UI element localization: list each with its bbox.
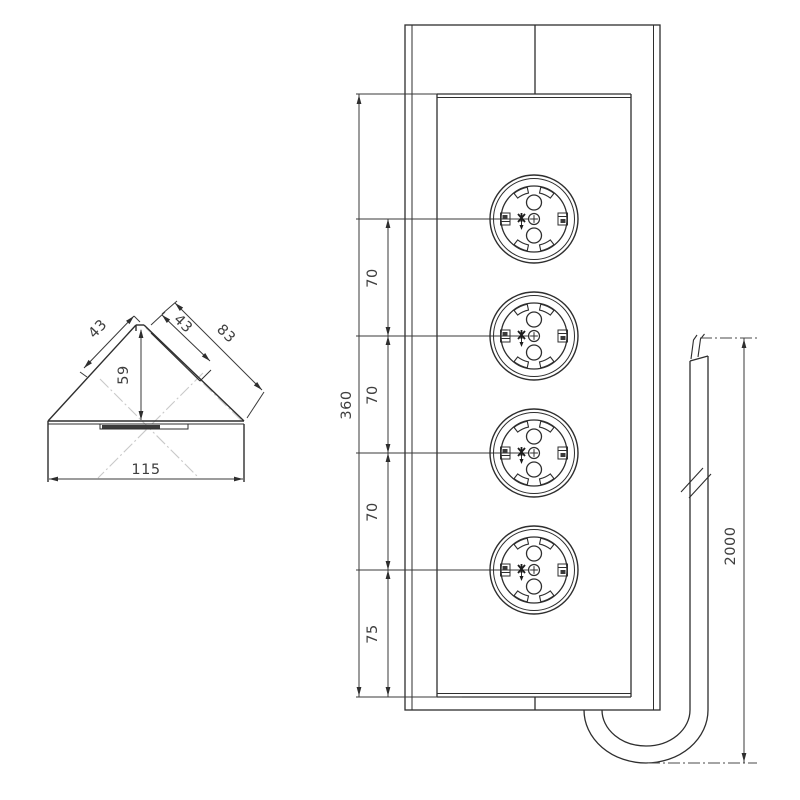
dim-label-115: 115 [131, 462, 160, 478]
dim-label-70-3: 70 [365, 502, 381, 521]
dim-label-360: 360 [339, 390, 355, 419]
dim-label-2000: 2000 [723, 527, 739, 566]
dim-label-59: 59 [116, 365, 132, 384]
drawing-svg: 43 59 43 83 115 [0, 0, 800, 800]
dim-label-70-1: 70 [365, 268, 381, 287]
drawing-background [0, 0, 800, 800]
technical-drawing-canvas: 43 59 43 83 115 [0, 0, 800, 800]
dim-label-70-2: 70 [365, 385, 381, 404]
dim-label-75: 75 [365, 624, 381, 643]
